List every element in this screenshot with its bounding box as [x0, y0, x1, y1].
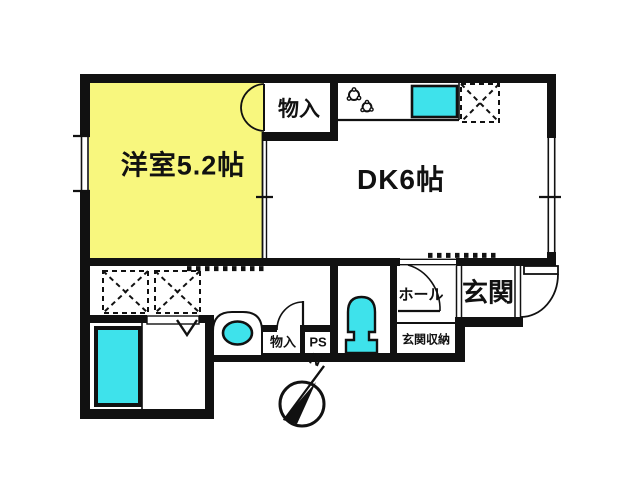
- washing-machine-space-2: [155, 271, 200, 313]
- front-door: [521, 266, 558, 317]
- label-closet-bottom: 物入: [270, 332, 296, 351]
- label-entrance: 玄関: [462, 273, 514, 310]
- floor-plan: 洋室5.2帖 DK6帖 物入 ホール 玄関 玄関収納 物入 PS N: [0, 0, 640, 499]
- floor-plan-drawing: [0, 0, 640, 499]
- bath-folding-door: [147, 316, 199, 335]
- compass-north: [280, 366, 324, 426]
- bathtub: [96, 328, 140, 405]
- window-right: [539, 138, 561, 252]
- label-hall: ホール: [398, 284, 443, 305]
- toilet: [346, 297, 377, 353]
- washing-machine-space-1: [103, 271, 148, 313]
- label-pipe-space: PS: [309, 335, 326, 350]
- lavatory-door: [277, 301, 303, 331]
- label-dk: DK6帖: [357, 158, 445, 198]
- window-left: [73, 136, 90, 192]
- kitchen-counter: [338, 83, 459, 120]
- washbasin: [213, 312, 262, 355]
- label-western-room: 洋室5.2帖: [121, 144, 246, 183]
- label-closet-top: 物入: [278, 93, 320, 123]
- stove-burners-icon: [347, 88, 373, 112]
- label-entrance-storage: 玄関収納: [402, 331, 450, 348]
- kitchen-sink: [412, 86, 457, 117]
- refrigerator-space: [461, 84, 499, 122]
